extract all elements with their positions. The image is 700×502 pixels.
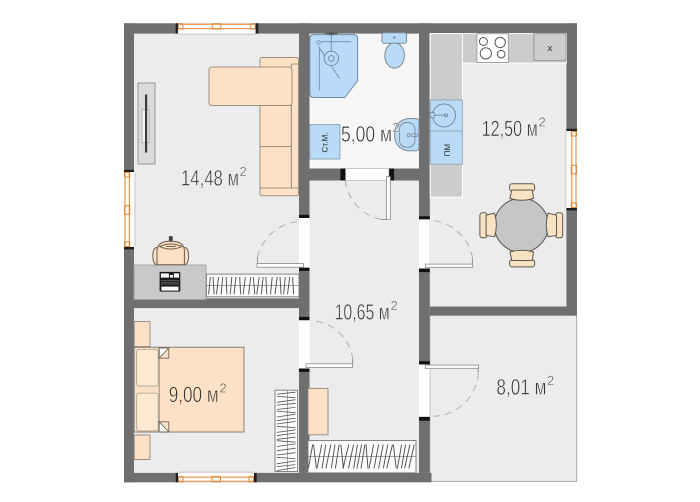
svg-text:2: 2 — [391, 298, 398, 313]
svg-text:8,01 м: 8,01 м — [496, 375, 546, 400]
svg-text:9,00 м: 9,00 м — [169, 382, 219, 407]
svg-text:2: 2 — [539, 114, 546, 129]
svg-text:2: 2 — [393, 120, 400, 135]
svg-text:2: 2 — [547, 373, 554, 388]
svg-text:10,65 м: 10,65 м — [335, 300, 390, 325]
svg-text:Ст.М.: Ст.М. — [321, 132, 330, 152]
svg-text:14,48 м: 14,48 м — [181, 166, 239, 191]
svg-text:12,50 м: 12,50 м — [482, 116, 538, 141]
svg-text:2: 2 — [220, 381, 227, 396]
svg-text:2: 2 — [240, 164, 247, 179]
svg-text:x: x — [548, 43, 553, 54]
svg-text:ПМ: ПМ — [443, 144, 452, 157]
svg-text:5,00 м: 5,00 м — [341, 122, 392, 147]
